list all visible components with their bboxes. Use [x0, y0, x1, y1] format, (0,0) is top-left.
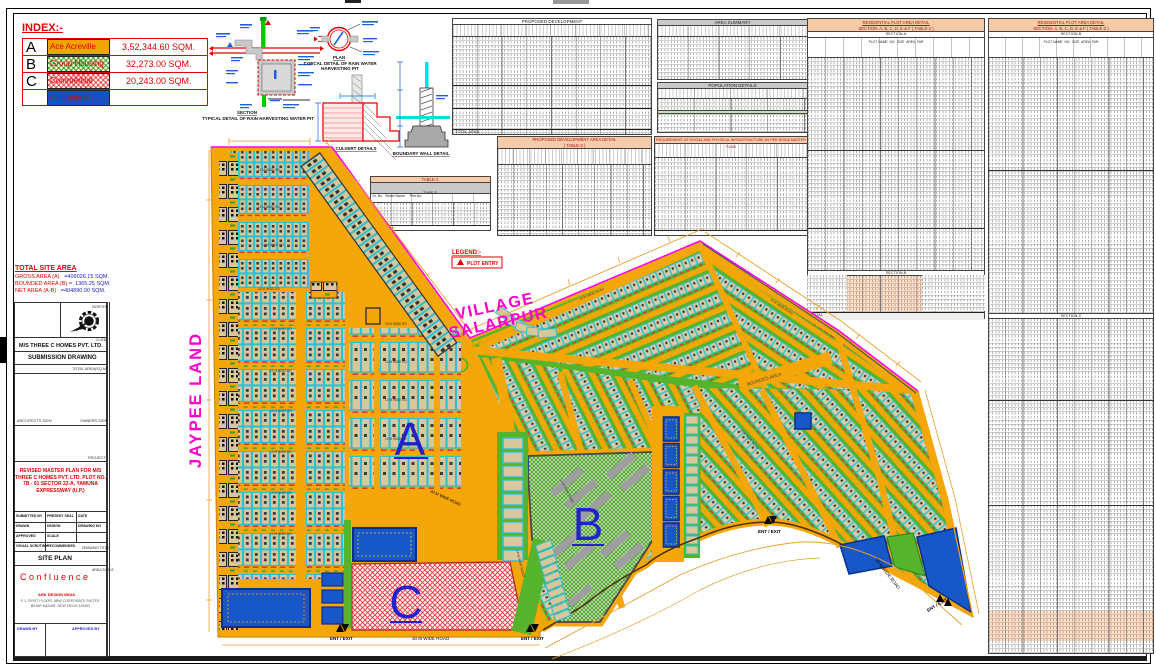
svg-text:16 M WIDE RD: 16 M WIDE RD: [385, 322, 407, 326]
svg-text:12 M WIDE RD: 12 M WIDE RD: [258, 168, 280, 172]
svg-text:12 M WIDE RD: 12 M WIDE RD: [270, 327, 292, 331]
svg-text:30 M WIDE ROAD: 30 M WIDE ROAD: [412, 636, 450, 641]
svg-text:12 M WIDE RD: 12 M WIDE RD: [270, 532, 292, 536]
svg-text:12 M WIDE RD: 12 M WIDE RD: [270, 369, 292, 373]
svg-text:12 M WIDE ROAD: 12 M WIDE ROAD: [559, 479, 575, 505]
svg-text:PLOT ENTRY: PLOT ENTRY: [467, 261, 499, 267]
svg-text:12 M WIDE RD: 12 M WIDE RD: [385, 360, 407, 364]
svg-text:12 M WIDE RD: 12 M WIDE RD: [385, 437, 407, 441]
svg-text:ENT / EXIT: ENT / EXIT: [330, 636, 353, 641]
svg-text:12 M WIDE RD: 12 M WIDE RD: [262, 243, 284, 247]
svg-text:12 M WIDE ROAD: 12 M WIDE ROAD: [769, 298, 794, 316]
svg-text:B: B: [573, 498, 604, 550]
svg-text:12 M WIDE RD: 12 M WIDE RD: [270, 491, 292, 495]
svg-text:JAYPEE LAND: JAYPEE LAND: [187, 332, 205, 468]
svg-text:30 M WIDE ROAD: 30 M WIDE ROAD: [874, 558, 901, 591]
svg-text:12 M WIDE RD: 12 M WIDE RD: [385, 398, 407, 402]
svg-text:ENT / EXIT: ENT / EXIT: [758, 529, 781, 534]
svg-text:12 M WIDE RD: 12 M WIDE RD: [270, 409, 292, 413]
svg-text:12 M WIDE RD: 12 M WIDE RD: [270, 450, 292, 454]
svg-text:12 M WIDE ROAD: 12 M WIDE ROAD: [579, 287, 605, 301]
svg-text:12 M WIDE ROAD: 12 M WIDE ROAD: [739, 428, 760, 451]
svg-text:14 M WIDE ROAD: 14 M WIDE ROAD: [515, 549, 526, 578]
svg-text:16 M WIDE RD: 16 M WIDE RD: [258, 287, 280, 291]
svg-text:12 M WIDE RD: 12 M WIDE RD: [258, 205, 280, 209]
svg-text:C: C: [389, 576, 422, 628]
svg-text:20 M WIDE ROAD: 20 M WIDE ROAD: [430, 488, 462, 507]
svg-text:LEGEND:-: LEGEND:-: [452, 250, 481, 256]
svg-text:ENT / EXIT: ENT / EXIT: [521, 636, 544, 641]
